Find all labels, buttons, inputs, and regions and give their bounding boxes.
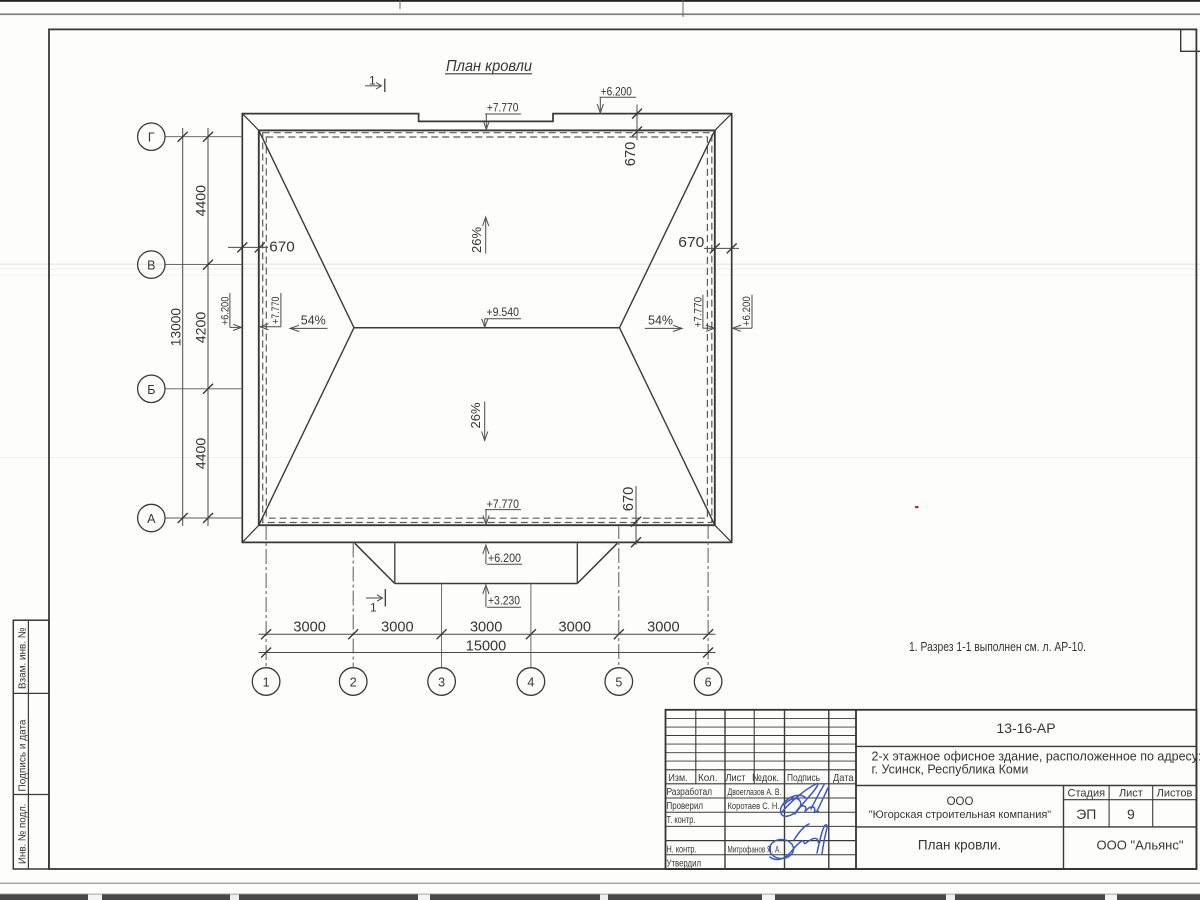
svg-text:Т. контр.: Т. контр. (667, 815, 696, 826)
svg-text:+7.770: +7.770 (487, 497, 520, 511)
svg-text:15000: 15000 (466, 638, 507, 655)
svg-text:Дата: Дата (833, 772, 854, 784)
svg-text:1: 1 (370, 601, 377, 615)
svg-text:4400: 4400 (192, 437, 208, 469)
svg-text:+6.200: +6.200 (741, 296, 753, 326)
svg-text:1. Разрез 1-1 выполнен см. л.: 1. Разрез 1-1 выполнен см. л. АР-10. (909, 639, 1086, 654)
svg-text:54%: 54% (301, 313, 326, 328)
svg-text:Лист: Лист (726, 772, 746, 784)
svg-text:670: 670 (678, 234, 704, 251)
svg-text:Стадия: Стадия (1068, 787, 1106, 799)
svg-text:3000: 3000 (559, 618, 592, 635)
svg-text:Проверил: Проверил (667, 801, 704, 812)
svg-text:3: 3 (438, 676, 445, 690)
svg-text:5: 5 (615, 676, 622, 690)
svg-text:Митрофанов Я. А.: Митрофанов Я. А. (728, 845, 782, 856)
svg-text:План кровли.: План кровли. (918, 838, 1001, 853)
svg-text:Инв. № подл.: Инв. № подл. (17, 804, 29, 865)
svg-text:Двоеглазов А. В.: Двоеглазов А. В. (728, 787, 782, 798)
svg-text:Б: Б (147, 383, 155, 397)
svg-text:Лист: Лист (1119, 787, 1143, 799)
svg-text:Н. контр.: Н. контр. (667, 845, 697, 856)
svg-text:№док.: №док. (752, 772, 779, 784)
svg-text:г. Усинск, Республика Коми: г. Усинск, Республика Коми (872, 763, 1029, 777)
svg-text:2-х этажное офисное здание, ра: 2-х этажное офисное здание, расположенно… (872, 750, 1200, 764)
svg-text:670: 670 (269, 238, 295, 255)
svg-text:26%: 26% (469, 227, 484, 253)
svg-text:А: А (147, 512, 156, 526)
svg-text:Изм.: Изм. (669, 772, 688, 784)
svg-text:Листов: Листов (1157, 787, 1193, 799)
svg-text:ООО: ООО (947, 796, 974, 808)
svg-text:9: 9 (1127, 806, 1135, 822)
svg-text:670: 670 (620, 487, 637, 512)
svg-text:4400: 4400 (192, 185, 208, 217)
svg-text:Взам. инв. №: Взам. инв. № (17, 628, 29, 690)
svg-text:Утвердил: Утвердил (667, 858, 702, 869)
svg-text:"Югорская строительная компани: "Югорская строительная компания" (869, 809, 1052, 821)
svg-text:3000: 3000 (381, 618, 414, 635)
svg-text:+9.540: +9.540 (487, 305, 520, 319)
svg-text:Подпись: Подпись (787, 772, 820, 784)
svg-text:3000: 3000 (470, 618, 503, 635)
svg-text:+7.770: +7.770 (487, 101, 519, 115)
svg-text:6: 6 (705, 676, 712, 690)
svg-text:13000: 13000 (167, 308, 183, 346)
svg-text:+3.230: +3.230 (488, 594, 520, 608)
svg-text:Разработал: Разработал (667, 786, 713, 798)
svg-text:План кровли: План кровли (446, 58, 532, 75)
svg-text:2: 2 (350, 676, 357, 690)
svg-text:4200: 4200 (192, 312, 208, 344)
svg-text:+6.200: +6.200 (488, 551, 521, 565)
svg-text:3000: 3000 (647, 618, 680, 635)
svg-text:26%: 26% (468, 402, 483, 428)
svg-text:54%: 54% (648, 313, 673, 328)
svg-text:В: В (147, 259, 155, 273)
svg-text:ЭП: ЭП (1076, 806, 1096, 822)
svg-text:+6.200: +6.200 (601, 84, 632, 98)
svg-text:3000: 3000 (293, 618, 326, 635)
svg-text:Г: Г (148, 131, 155, 145)
svg-text:4: 4 (527, 676, 534, 690)
svg-text:Кол.: Кол. (698, 772, 718, 784)
svg-text:ООО "Альянс": ООО "Альянс" (1097, 838, 1184, 853)
svg-text:13-16-АР: 13-16-АР (996, 720, 1055, 736)
svg-text:670: 670 (622, 142, 639, 167)
svg-text:Подпись и дата: Подпись и дата (17, 719, 29, 791)
svg-text:1: 1 (263, 676, 270, 690)
svg-text:Коротаев С. Н.: Коротаев С. Н. (728, 801, 780, 812)
